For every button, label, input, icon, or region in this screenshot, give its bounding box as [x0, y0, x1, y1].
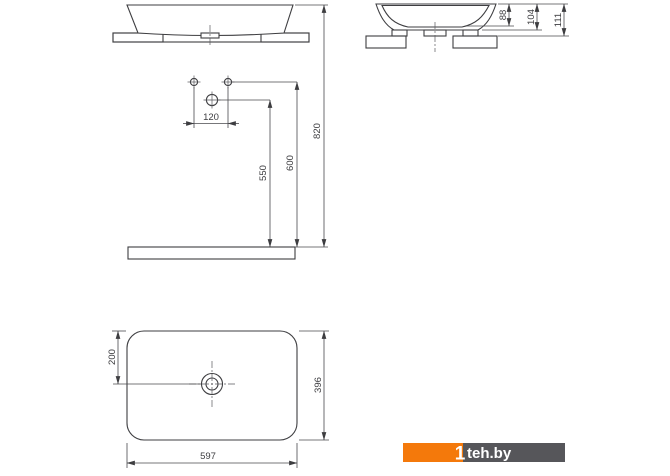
dim-label-111: 111: [553, 13, 564, 27]
dim-label-104: 104: [526, 9, 537, 25]
dim-label-120: 120: [203, 112, 219, 123]
drain-hole: [204, 92, 221, 109]
dim-label-200: 200: [107, 349, 118, 365]
dim-label-396: 396: [313, 377, 324, 393]
front-view: [113, 5, 309, 47]
basin-outline: [127, 331, 297, 440]
floor-section: [128, 247, 295, 259]
dim-label-597: 597: [200, 451, 216, 462]
counter-block-right: [453, 36, 497, 48]
plan-view: 200 396 597: [107, 331, 329, 468]
product-dimension-drawing: 88 104 111 120: [0, 0, 670, 471]
sink-foot-left: [392, 30, 407, 36]
dim-label-88: 88: [498, 10, 509, 21]
installation-dimension-view: 120 550 600 820: [128, 5, 328, 259]
side-section-view: 88 104 111: [366, 4, 569, 52]
watermark-logo: 1 teh.by: [403, 443, 565, 465]
logo-one-glyph: 1: [455, 444, 466, 465]
counter-block-left: [366, 36, 406, 48]
dim-label-600: 600: [285, 155, 296, 171]
logo-site-text: teh.by: [467, 445, 512, 462]
dim-label-550: 550: [258, 165, 269, 181]
mounting-hole-left: [188, 76, 201, 89]
dim-label-820: 820: [312, 123, 323, 139]
sink-foot-right: [463, 30, 478, 36]
